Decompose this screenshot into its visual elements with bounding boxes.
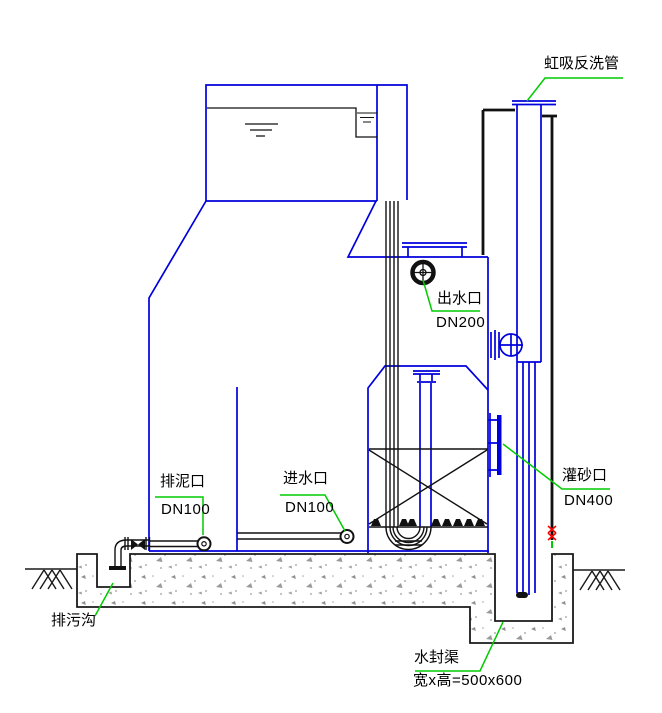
sand-port-flange [488, 413, 497, 477]
siphon-cap [512, 101, 556, 105]
label-sand-title: 灌砂口 [562, 468, 607, 484]
ground-hatch-right [573, 570, 625, 590]
mud-port-ring [198, 537, 211, 550]
filter-section-drawing [0, 0, 662, 713]
label-mud-title: 排泥口 [160, 474, 205, 490]
drawing-canvas: 虹吸反洗管 出水口 DN200 排泥口 DN100 进水口 DN100 灌砂口 … [0, 0, 662, 713]
ground-hatch-left [25, 569, 77, 589]
label-water-seal-title: 水封渠 [414, 650, 459, 666]
label-sewage-ditch: 排污沟 [51, 613, 96, 629]
funnel-flange [413, 371, 440, 382]
label-outlet-title: 出水口 [437, 291, 482, 307]
label-inlet-title: 进水口 [283, 471, 328, 487]
breaker-flange [491, 330, 499, 360]
water-line [207, 108, 377, 137]
label-mud-spec: DN100 [161, 502, 210, 518]
tank-structure [149, 85, 556, 595]
funnel-pipe [420, 383, 431, 527]
label-sand-spec: DN400 [564, 493, 613, 509]
outer-pipe-left [483, 110, 515, 255]
water-level-symbol [245, 124, 278, 136]
filter-cover-flange [402, 243, 467, 257]
label-inlet-spec: DN100 [285, 500, 334, 516]
downcomer-pipes [386, 201, 398, 527]
leader-siphon [527, 78, 623, 101]
inlet-pipe [237, 533, 341, 539]
u-bend [386, 527, 431, 550]
support-cross [369, 449, 488, 524]
pit-pipe-foot [516, 592, 528, 598]
valve-flanges [125, 537, 150, 550]
siphon-lower-pipes [523, 362, 535, 595]
mud-pipe [127, 540, 198, 547]
label-siphon-backwash-pipe: 虹吸反洗管 [544, 56, 619, 72]
inlet-port-ring [341, 530, 354, 543]
label-water-seal-spec: 宽x高=500x600 [413, 673, 522, 689]
filter-top-edge [348, 201, 488, 257]
filter-nozzles [371, 519, 485, 526]
label-outlet-spec: DN200 [436, 315, 485, 331]
water-level-symbol-small [357, 113, 377, 122]
left-tank-wall [149, 201, 206, 551]
